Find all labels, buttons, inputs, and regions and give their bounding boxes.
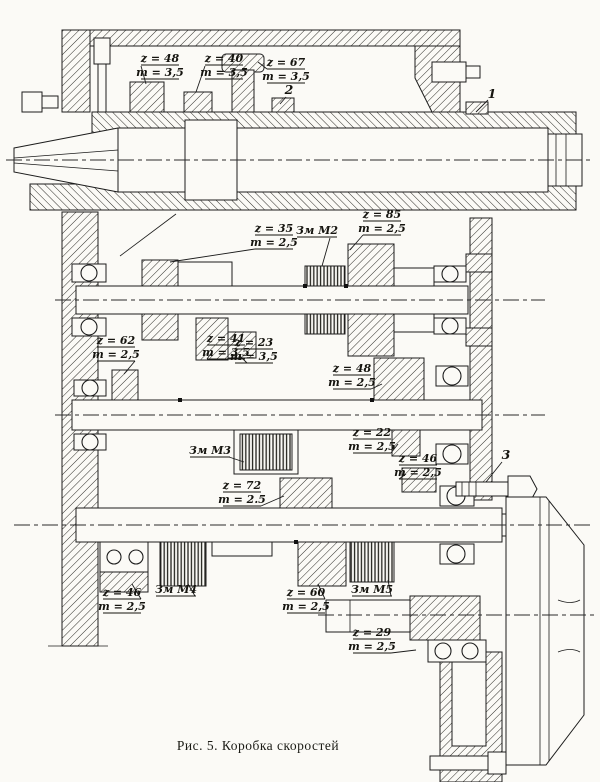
shaft3-gear-z62 <box>112 370 138 400</box>
label-z23: z = 23 m = 3,5 <box>230 336 278 363</box>
label-z35: z = 35 m = 2,5 <box>250 222 298 249</box>
seal-mark <box>303 284 307 288</box>
housing-rib-line <box>120 214 176 256</box>
callout-1: 1 <box>488 86 497 101</box>
label-z: z = 48 <box>140 52 180 65</box>
shaft4-spacer <box>212 542 272 556</box>
clutch-M3-discs <box>240 434 292 470</box>
housing-top-wall <box>90 30 460 46</box>
label-m: m = 2.5 <box>218 493 266 506</box>
clutch-label-text: Зм М5 <box>351 583 393 596</box>
bolt-3-shank <box>456 482 508 496</box>
shaft2-sleeve-block <box>178 262 232 286</box>
label-z85: z = 85 m = 2,5 <box>358 208 406 235</box>
label-z62: z = 62 m = 2,5 <box>92 334 140 361</box>
figure-page: z = 48 m = 3,5 z = 40 m = 3,5 z = 67 m =… <box>0 0 600 782</box>
label-z: z = 35 <box>254 222 293 235</box>
bottom-bolt-shank <box>430 756 488 770</box>
top-right-stud <box>432 62 466 82</box>
bearing-ball <box>443 367 461 385</box>
top-bolt-head <box>94 38 110 64</box>
clutch-M4-discs <box>160 542 206 586</box>
bearing-ball <box>82 380 98 396</box>
label-clutch-M3: Зм М3 <box>189 444 231 457</box>
label-m: m = 3,5 <box>200 66 248 79</box>
output-gear-z29 <box>410 596 480 640</box>
shaft2-gear-z85-top <box>348 244 394 286</box>
callout-3: 3 <box>502 447 511 462</box>
label-z: z = 60 <box>286 586 326 599</box>
label-m: m = 2,5 <box>282 600 330 613</box>
label-m: m = 2,5 <box>328 376 376 389</box>
callout-2: 2 <box>284 82 294 97</box>
gearbox-section-drawing: z = 48 m = 3,5 z = 40 m = 3,5 z = 67 m =… <box>0 0 600 782</box>
clutch-M5-discs <box>350 542 394 582</box>
label-clutch-M2: Зм М2 <box>296 224 338 237</box>
clutch-M2-discs-top <box>305 266 345 286</box>
label-clutch-M4: Зм М4 <box>155 583 197 596</box>
label-spindle-z67: z = 67 m = 3,5 <box>262 56 310 83</box>
pulley-body <box>506 497 584 765</box>
housing-top-left-block <box>62 30 90 112</box>
bearing-ball <box>447 545 465 563</box>
clutch-M2-discs-bottom <box>305 314 345 334</box>
bearing-ball <box>82 434 98 450</box>
label-shaft4-z46: z = 46 m = 2,5 <box>98 586 146 613</box>
top-right-stud-nut <box>466 66 480 78</box>
label-z: z = 46 <box>102 586 142 599</box>
clutch-label-text: Зм М2 <box>296 224 338 237</box>
label-m: m = 2,5 <box>92 348 140 361</box>
shaft2-sliding-sleeve-bottom <box>394 314 434 332</box>
bearing-ball <box>442 318 458 334</box>
label-m: m = 2,5 <box>358 222 406 235</box>
seal-mark <box>344 284 348 288</box>
label-clutch-M5: Зм М5 <box>351 583 393 596</box>
bearing-ball <box>107 550 121 564</box>
bearing-ball <box>129 550 143 564</box>
label-z: z = 23 <box>234 336 274 349</box>
spindle-gear-z40 <box>184 92 212 112</box>
bearing-ball <box>81 319 97 335</box>
label-z: z = 72 <box>222 479 262 492</box>
label-z: z = 46 <box>398 452 438 465</box>
bottom-column-slot <box>452 662 486 746</box>
shaft2-gear-z85-bottom <box>348 314 394 356</box>
clutch-label-text: Зм М3 <box>189 444 231 457</box>
label-spindle-z40: z = 40 m = 3,5 <box>200 52 248 79</box>
label-shaft3-z48: z = 48 m = 2,5 <box>328 362 376 389</box>
bearing-ball <box>435 643 451 659</box>
shaft2-gear-z35-bottom <box>142 314 178 340</box>
label-z: z = 48 <box>332 362 372 375</box>
label-z72: z = 72 m = 2.5 <box>218 479 266 506</box>
label-z60: z = 60 m = 2,5 <box>282 586 330 613</box>
bearing-ball <box>462 643 478 659</box>
shaft3-gear-z48 <box>374 358 424 400</box>
shaft2-gear-z35-top <box>142 260 178 286</box>
label-z22: z = 22 m = 2,5 <box>348 426 396 453</box>
left-bolt-head <box>22 92 42 112</box>
bearing-ball <box>81 265 97 281</box>
label-spindle-z48: z = 48 m = 3,5 <box>136 52 184 79</box>
spindle-gear-z48 <box>130 82 164 112</box>
left-bolt-stem <box>42 96 58 108</box>
label-z: z = 29 <box>352 626 392 639</box>
label-z: z = 85 <box>362 208 401 221</box>
seal-mark <box>178 398 182 402</box>
label-z29: z = 29 m = 2,5 <box>348 626 396 653</box>
bearing-ball <box>443 445 461 463</box>
seal-mark <box>294 540 298 544</box>
label-m: m = 2,5 <box>348 640 396 653</box>
seal-mark <box>370 398 374 402</box>
label-z: z = 40 <box>204 52 244 65</box>
label-m: m = 2,5 <box>394 466 442 479</box>
label-z: z = 67 <box>266 56 306 69</box>
label-m: m = 2,5 <box>348 440 396 453</box>
clutch-label-text: Зм М4 <box>155 583 197 596</box>
label-z: z = 62 <box>96 334 136 347</box>
top-bolt-stem <box>98 64 106 112</box>
label-m: m = 2,5 <box>250 236 298 249</box>
shaft2-bearing-cap <box>466 328 492 346</box>
bearing-ball <box>442 266 458 282</box>
shaft2-bearing-cap <box>466 254 492 272</box>
label-z: z = 22 <box>352 426 392 439</box>
shaft4-gear-z72 <box>280 478 332 508</box>
label-m: m = 2,5 <box>98 600 146 613</box>
shaft4-gear-z60 <box>298 542 346 586</box>
shaft2-sliding-sleeve-top <box>394 268 434 286</box>
bottom-bolt-head <box>488 752 506 774</box>
label-shaft3-z46: z = 46 m = 2,5 <box>394 452 442 479</box>
label-m: m = 3,5 <box>136 66 184 79</box>
label-m: m = 3,5 <box>230 350 278 363</box>
figure-caption: Рис. 5. Коробка скоростей <box>177 738 339 753</box>
